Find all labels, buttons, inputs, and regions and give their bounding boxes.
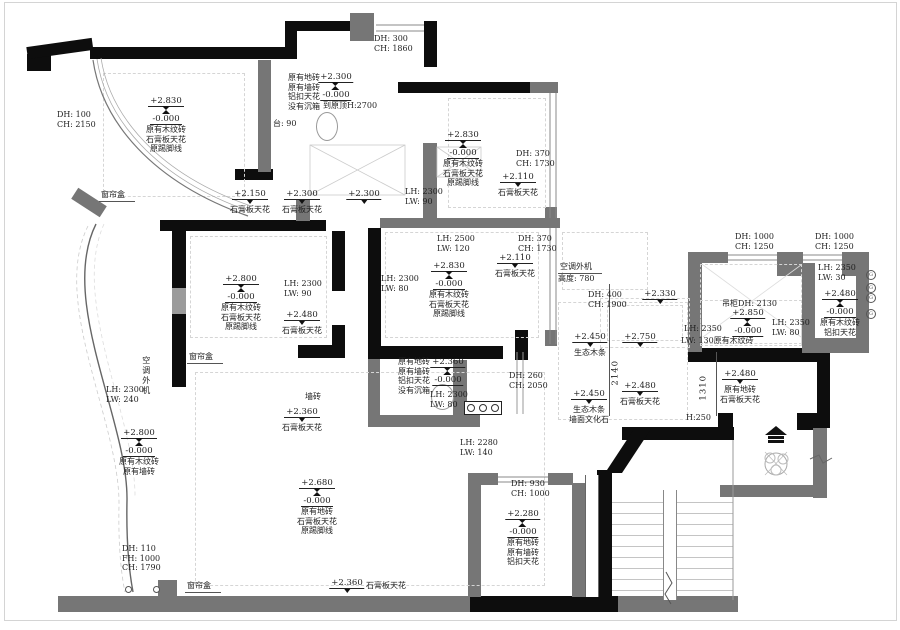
annotation-lvl-2480-hall: +2.480原有地砖石膏板天花 [720,369,760,404]
note-line: DH: 930 [511,479,550,489]
annotation-lvl-left-balcony: +2.800-0.000原有木纹砖原有墙砖 [119,428,159,476]
note-line: CH: 1790 [122,563,161,573]
note-line: 石膏板天花 [282,326,322,336]
level-value: +2.110 [497,253,532,264]
note-line: 石膏板天花 [282,205,322,215]
level-value: +2.360 [329,578,364,589]
annotation-dh-left-bottom: DH: 110FH: 1000CH: 1790 [122,544,161,573]
annotation-dim-2140: 2140 [603,367,629,378]
note-line: 台: 90 [273,119,296,129]
level-value: -0.000 [320,90,351,101]
annotation-ac-unit-right: 空调外机高度: 780 [558,262,602,283]
note-line: 墙面文化石 [569,415,609,425]
note-line: CH: 1900 [588,300,627,310]
annotation-ac-unit-left: 空调外机 [141,356,151,399]
annotation-dh-laundry: DH: 930CH: 1000 [511,479,550,498]
level-value: -0.000 [433,279,464,290]
level-mark-icon [737,380,743,384]
note-line: 原有地砖 [505,538,540,548]
annotation-dh-balcony: DH: 400CH: 1900 [588,290,627,309]
annotation-lh-bath2: LH: 2300LW: 80 [430,390,468,409]
note-line: 空调外机 [558,262,602,274]
note-line: LW: 240 [106,395,144,405]
annotation-lvl-kitchen: +2.850-0.000 [730,308,765,337]
level-mark-icon [344,589,350,593]
annotation-lvl-2330: +2.330 [642,289,677,305]
note-line: LW: 140 [460,448,498,458]
note-line: 没有沉箱 [398,386,430,396]
annotation-dh-kitchen-win1: DH: 1000CH: 1250 [735,232,774,251]
annotation-bath2-finishes: 原有地砖原有墙砖铝扣天花没有沉箱 [398,357,430,395]
note-line: 铝扣天花 [398,376,430,386]
annotation-lh-master-top: LH: 2500LW: 120 [437,234,475,253]
note-line: 石膏板天花 [282,423,322,433]
level-value: -0.000 [150,114,181,125]
note-line: CH: 2050 [509,381,548,391]
note-line: CH: 1000 [511,489,550,499]
note-line: 原踢脚线 [297,526,337,536]
annotation-lvl-pantry: +2.480-0.000原有木纹砖铝扣天花 [820,289,860,337]
level-mark-icon [299,321,305,325]
annotation-lh-pantry: LH: 2350LW: 30 [818,263,856,282]
note-line: 石膏板天花 [230,205,270,215]
level-mark-icon [361,200,367,204]
note-line: LH: 2350 [684,324,722,334]
note-line: LW: 30 [818,273,856,283]
level-mark-icon [637,343,643,347]
note-line: DH: 370 [518,234,557,244]
level-value: +2.450 [572,332,607,343]
note-line: LH: 2350 [818,263,856,273]
note-line: CH: 1250 [815,242,854,252]
note-line: CH: 1860 [374,44,413,54]
note-line: 原有地砖 [297,507,337,517]
note-line: 石膏板天花 [720,395,760,405]
annotation-lvl-2150: +2.150石膏板天花 [230,189,270,215]
level-value: +2.150 [232,189,267,200]
level-value: +2.480 [284,310,319,321]
annotation-lvl-2110-a: +2.110石膏板天花 [498,172,538,198]
level-mark-icon [237,284,246,292]
level-mark-icon [459,140,468,148]
floor-plan-canvas: G G G G DH: 100CH: 2150+2.830-0.000原有木纹砖… [0,0,900,630]
annotation-lvl-top-left: +2.830-0.000原有木纹砖石膏板天花原踢脚线 [146,96,186,154]
annotation-lvl-2450-a: +2.450生态木条 [572,332,607,358]
level-mark-icon [332,82,341,90]
annotation-lvl-bath2: +2.360-0.000 [430,357,465,386]
level-mark-icon [247,200,253,204]
annotation-lh-living-edge: LH: 2280LW: 140 [460,438,498,457]
annotation-dim-1310: 1310 [691,382,717,393]
level-mark-icon [313,488,322,496]
annotation-dh-top-left: DH: 100CH: 2150 [57,110,96,129]
level-value: +2.110 [500,172,535,183]
level-value: +2.750 [622,332,657,343]
level-value: -0.000 [123,446,154,457]
annotation-lvl-bed2: +2.830-0.000原有木纹砖石膏板天花原踢脚线 [443,130,483,188]
note-line: 石膏板天花 [498,188,538,198]
annotation-dh-bed2: DH: 370CH: 1730 [516,149,555,168]
note-line: H:250 [686,413,711,423]
annotation-lvl-bath1: +2.300-0.000 [318,72,353,101]
note-line: 到原顶H:2700 [323,101,377,111]
note-line: 原有地砖 [398,357,430,367]
annotation-lh-bed2: LH: 2300LW: 90 [405,187,443,206]
note-line: 石膏板天花 [443,169,483,179]
level-value: -0.000 [225,292,256,303]
level-mark-icon [519,519,528,527]
level-mark-icon [744,318,753,326]
note-line: 高度: 780 [558,274,602,284]
annotation-lh-left-balcony: LH: 2300LW: 240 [106,385,144,404]
annotation-bath1-finishes: 原有地砖原有墙砖铝扣天花没有沉箱 [288,73,320,111]
note-line: 原有地砖 [288,73,320,83]
annotation-bath1-orig-ceiling: 到原顶H:2700 [323,101,377,111]
level-value: +2.300 [346,189,381,200]
note-line: LW: 80 [430,400,468,410]
annotation-lh-bed1: LH: 2300LW: 90 [284,279,322,298]
level-value: -0.000 [824,307,855,318]
note-line: LH: 2300 [284,279,322,289]
level-value: -0.000 [432,375,463,386]
note-line: 原有木纹砖 [119,457,159,467]
level-mark-icon [587,343,593,347]
note-line: 石膏板天花 [366,581,406,591]
level-mark-icon [445,271,454,279]
level-mark-icon [586,400,592,404]
note-line: 铝扣天花 [820,328,860,338]
note-line: LW: 120 [437,244,475,254]
annotation-lvl-2450-b: +2.450生态木条墙面文化石 [569,389,609,424]
note-line: LH: 2350 [772,318,810,328]
annotation-lvl-2360-living-top: +2.360石膏板天花 [282,407,322,433]
annotation-curtain-box-3: 窗帘盒 [187,352,223,364]
annotation-bath1-counter: 台: 90 [273,119,296,129]
annotation-lvl-laundry: +2.280-0.000原有地砖原有墙砖铝扣天花 [505,509,540,567]
note-line: 原有木纹砖 [820,318,860,328]
level-mark-icon [135,438,144,446]
level-mark-icon [444,367,453,375]
level-mark-icon [162,106,171,114]
note-line: 石膏板天花 [221,313,261,323]
note-line: LH: 2300 [381,274,419,284]
note-line: 原有墙砖 [505,548,540,558]
level-mark-icon [637,392,643,396]
note-line: 原有木纹砖 [443,159,483,169]
note-line: LH: 2300 [430,390,468,400]
annotation-lvl-2110-b: +2.110石膏板天花 [495,253,535,279]
note-line: 没有沉箱 [288,102,320,112]
note-line: 生态木条 [569,405,609,415]
level-value: -0.000 [301,496,332,507]
note-line: 墙砖 [305,392,321,402]
note-line: 原踢脚线 [146,144,186,154]
annotation-living-bottom-ceiling: 石膏板天花 [366,581,406,591]
note-line: 原有木纹砖 [146,125,186,135]
note-line: 原有墙砖 [119,467,159,477]
annotation-dh-top-window: DH: 300CH: 1860 [374,34,413,53]
note-line: 原踢脚线 [443,178,483,188]
annotation-lvl-bed1: +2.800-0.000原有木纹砖石膏板天花原踢脚线 [221,274,261,332]
note-line: 原有地砖 [720,385,760,395]
annotation-dh-master: DH: 370CH: 1730 [518,234,557,253]
note-line: LH: 2280 [460,438,498,448]
note-line: 石膏板天花 [620,397,660,407]
level-mark-icon [657,300,663,304]
level-mark-icon [512,264,518,268]
note-line: LH: 2300 [106,385,144,395]
note-line: LW: 80 [381,284,419,294]
note-line: CH: 1730 [518,244,557,254]
level-value: +2.480 [622,381,657,392]
note-line: 原有木纹砖 [221,303,261,313]
note-line: 原踢脚线 [221,322,261,332]
note-line: DH: 1000 [815,232,854,242]
note-line: 原踢脚线 [429,309,469,319]
note-line: LW: 90 [405,197,443,207]
level-value: +2.480 [722,369,757,380]
annotation-dh-kitchen-win2: DH: 1000CH: 1250 [815,232,854,251]
note-line: 铝扣天花 [288,92,320,102]
annotation-wall-tile-note: 墙砖 [305,392,321,402]
annotation-lvl-2300-a: +2.300石膏板天花 [282,189,322,215]
level-mark-icon [299,418,305,422]
vertical-text: 空调外机 [141,356,151,396]
note-line: 铝扣天花 [505,557,540,567]
annotation-lw-kitchen-1: LW: 130原有木纹砖 [681,336,754,346]
note-line: CH: 1730 [516,159,555,169]
note-line: DH: 260 [509,371,548,381]
note-line: 原有墙砖 [398,367,430,377]
annotation-lvl-2360-living-bottom: +2.360 [329,578,364,594]
annotation-lh-master-left: LH: 2300LW: 80 [381,274,419,293]
note-line: LW: 90 [284,289,322,299]
annotation-lh-kitchen-2: LH: 2350LW: 80 [772,318,810,337]
note-line: 窗帘盒 [187,352,223,364]
annotation-lvl-2480-dining: +2.480石膏板天花 [620,381,660,407]
note-line: 石膏板天花 [495,269,535,279]
note-line: 石膏板天花 [297,517,337,527]
note-line: DH: 300 [374,34,413,44]
annotation-h250-wall: H:250 [686,413,711,423]
note-line: CH: 2150 [57,120,96,130]
note-line: LH: 2500 [437,234,475,244]
level-value: -0.000 [507,527,538,538]
note-line: 窗帘盒 [99,190,135,202]
note-line: DH: 370 [516,149,555,159]
note-line: LW: 130原有木纹砖 [681,336,754,346]
note-line: DH: 100 [57,110,96,120]
annotation-curtain-box-1: 窗帘盒 [99,190,135,202]
note-line: DH: 110 [122,544,161,554]
annotation-dh-bath2: DH: 260CH: 2050 [509,371,548,390]
level-value: -0.000 [447,148,478,159]
note-line: LW: 80 [772,328,810,338]
note-line: 石膏板天花 [429,300,469,310]
note-line: FH: 1000 [122,554,161,564]
level-value: +2.300 [284,189,319,200]
level-value: +2.450 [571,389,606,400]
note-line: 原有木纹砖 [429,290,469,300]
annotation-curtain-box-2: 窗帘盒 [185,581,221,593]
level-mark-icon [299,200,305,204]
note-line: 生态木条 [572,348,607,358]
level-value: +2.360 [284,407,319,418]
level-value: +2.330 [642,289,677,300]
level-mark-icon [836,299,845,307]
annotation-lvl-2300-b: +2.300 [346,189,381,205]
note-line: 窗帘盒 [185,581,221,593]
note-line: 原有墙砖 [288,83,320,93]
note-line: DH: 400 [588,290,627,300]
annotation-lvl-2750: +2.750 [622,332,657,348]
note-line: 石膏板天花 [146,135,186,145]
annotation-lvl-living: +2.680-0.000原有地砖石膏板天花原踢脚线 [297,478,337,536]
annotation-lvl-master: +2.830-0.000原有木纹砖石膏板天花原踢脚线 [429,261,469,319]
note-line: CH: 1250 [735,242,774,252]
level-mark-icon [515,183,521,187]
annotation-lvl-2480-bed1: +2.480石膏板天花 [282,310,322,336]
annotation-lh-kitchen-1: LH: 2350 [684,324,722,334]
vertical-text: 1310 [699,375,709,401]
note-line: LH: 2300 [405,187,443,197]
note-line: DH: 1000 [735,232,774,242]
